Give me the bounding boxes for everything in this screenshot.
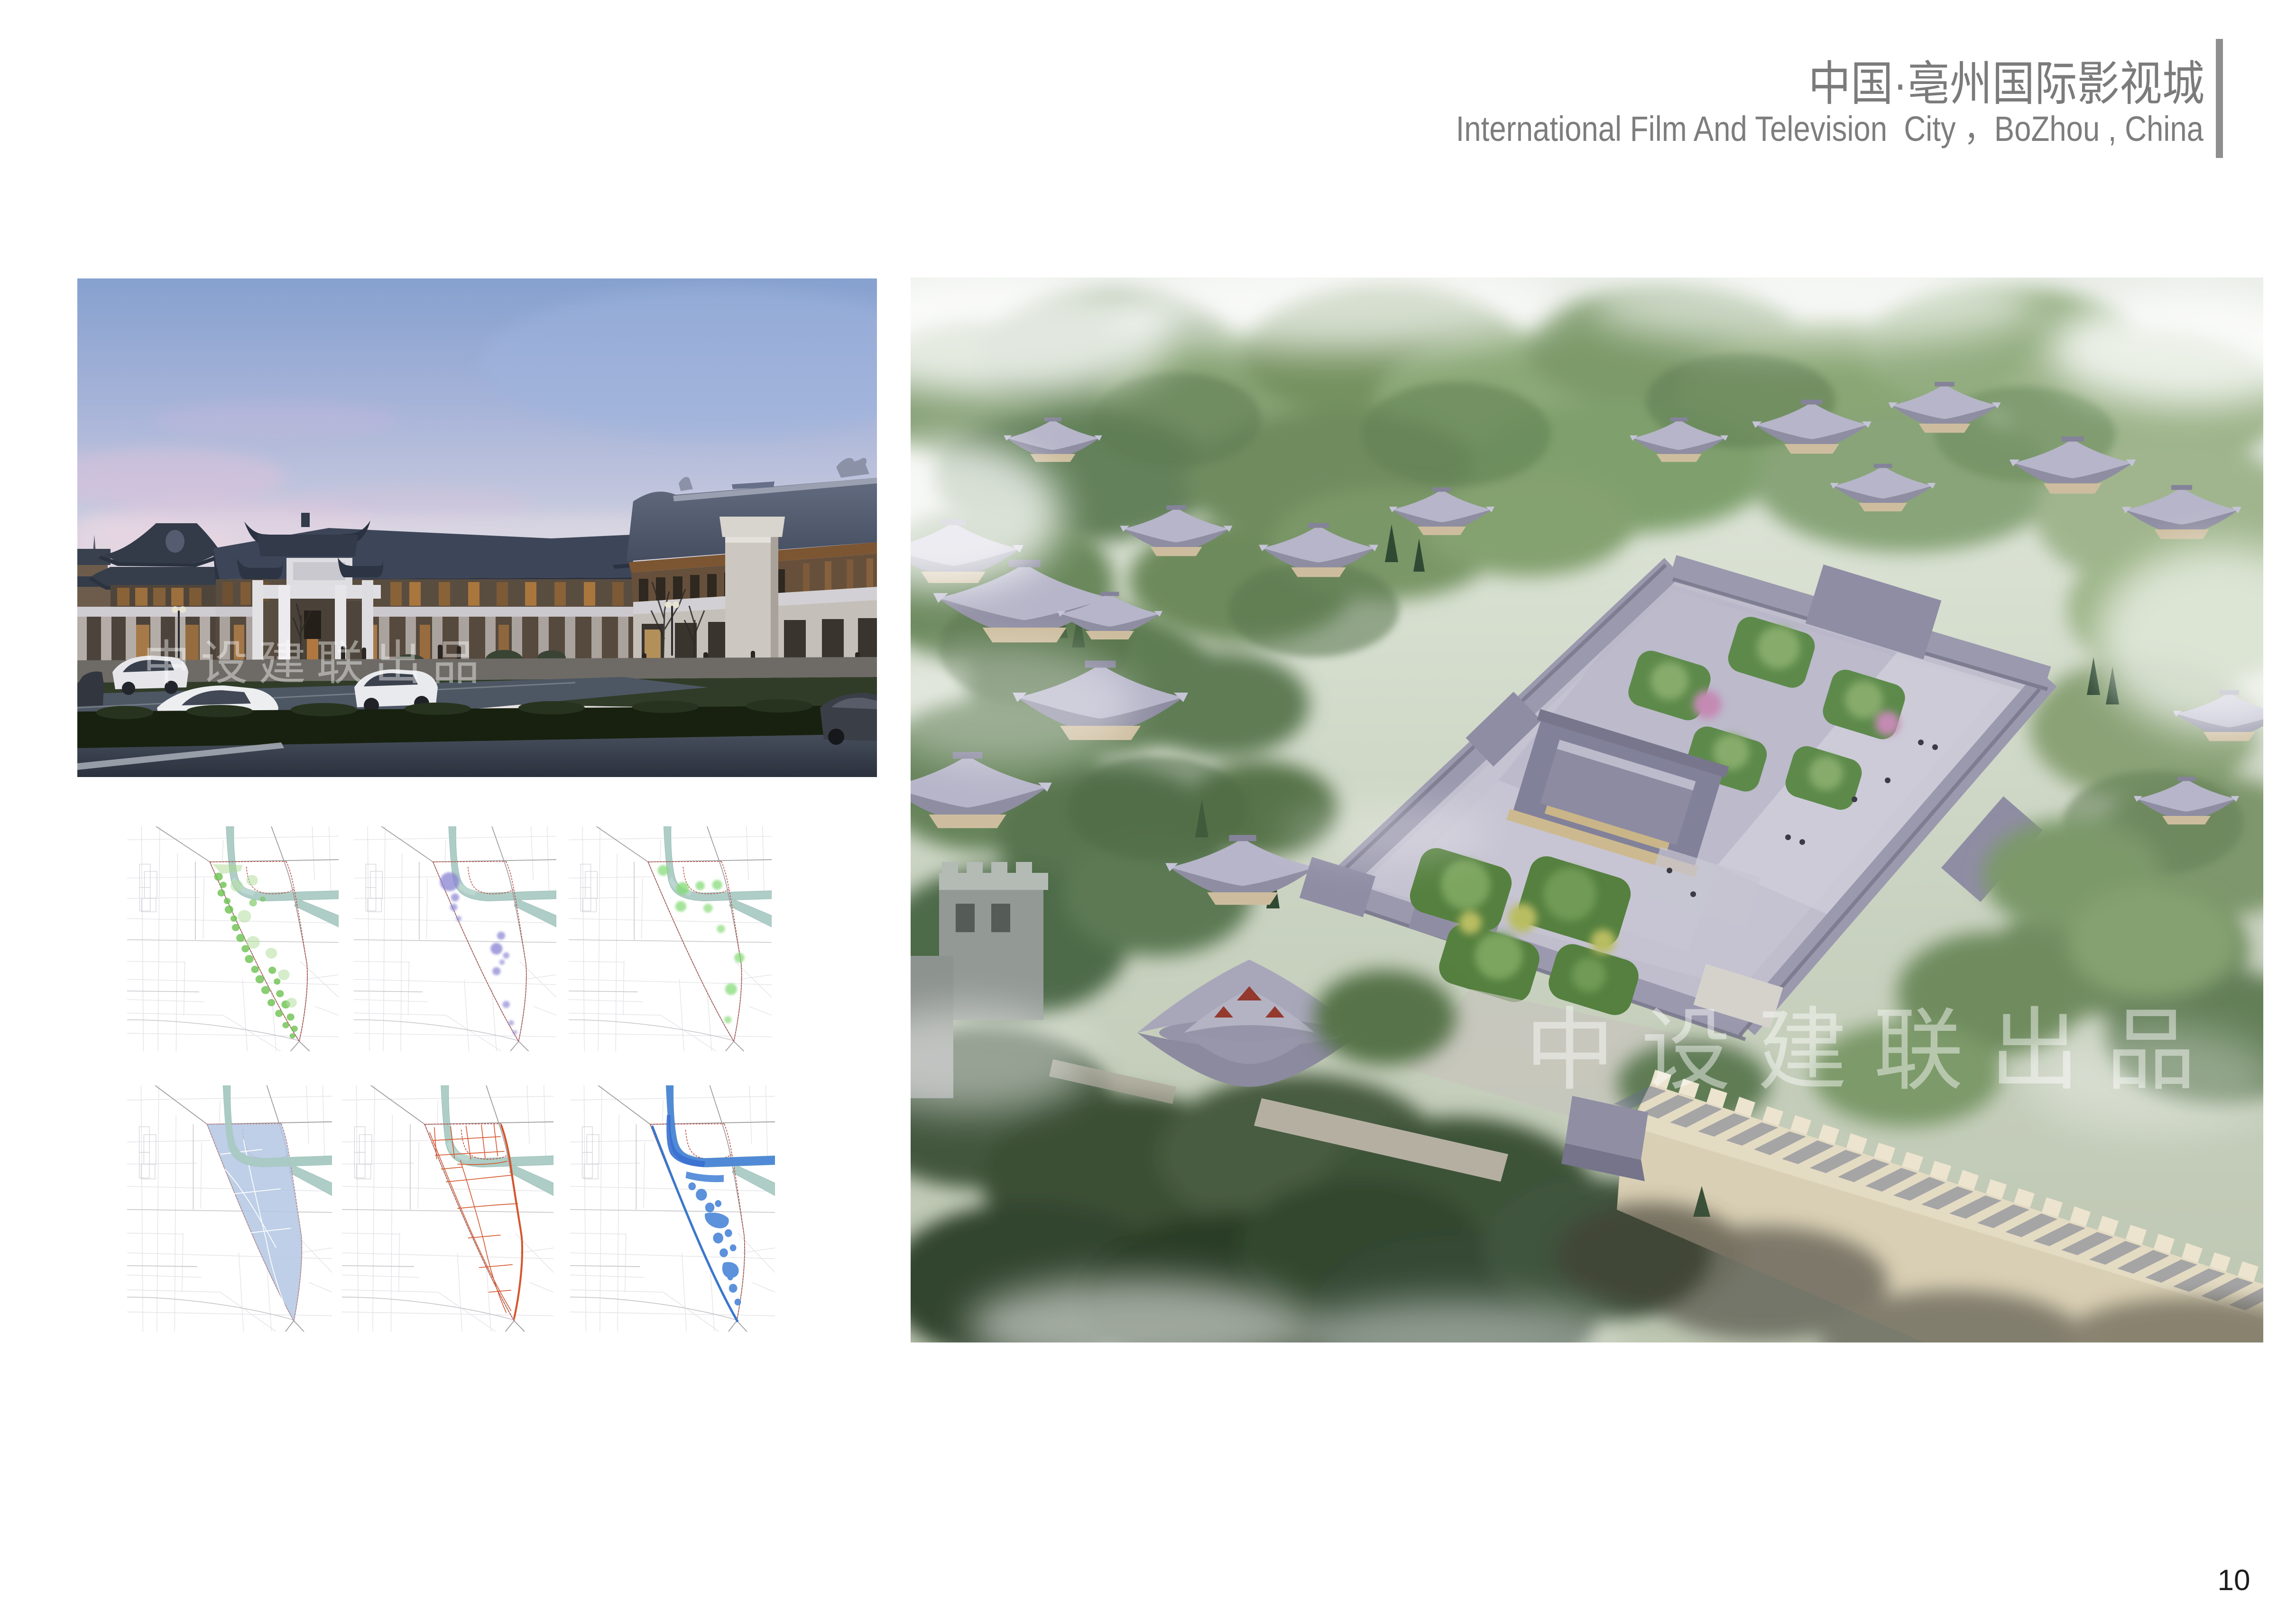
svg-text:中设建联出品: 中设建联出品 [143,637,490,690]
svg-text:中设建联出品: 中设建联出品 [1525,1000,2222,1101]
